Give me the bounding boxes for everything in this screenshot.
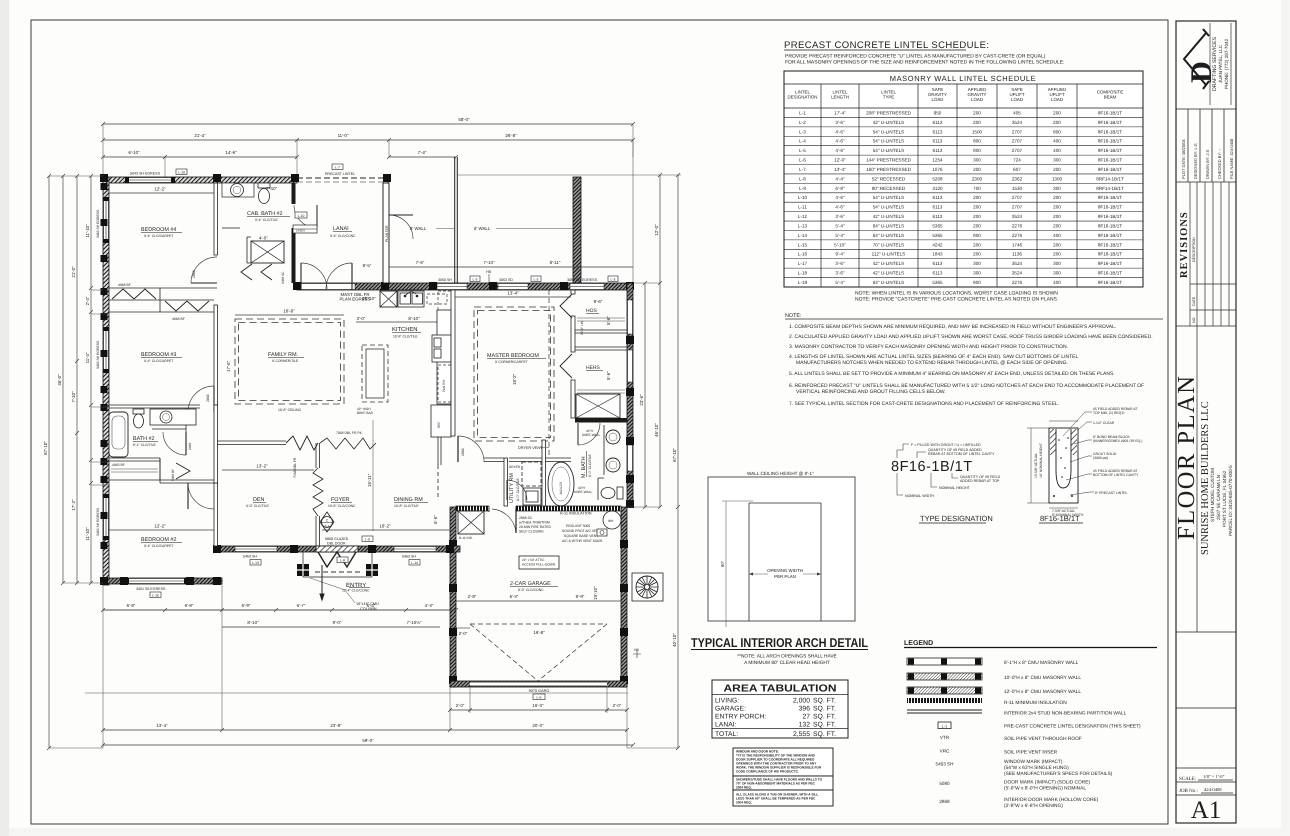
svg-text:L-16: L-16 <box>798 252 808 257</box>
svg-text:3524: 3524 <box>1012 120 1023 125</box>
svg-text:DESIGNED BY: L.G: DESIGNED BY: L.G <box>1193 143 1198 179</box>
svg-text:WALL CEILING HEIGHT @ 8'-1": WALL CEILING HEIGHT @ 8'-1" <box>747 471 814 476</box>
svg-text:13'-2": 13'-2" <box>256 464 268 469</box>
svg-text:DRAWN BY: J.S: DRAWN BY: J.S <box>1205 149 1210 179</box>
svg-text:8F16-1B/1T: 8F16-1B/1T <box>1098 167 1122 172</box>
svg-text:7068 DBL FR PK: 7068 DBL FR PK <box>336 431 363 435</box>
svg-text:PRE-CAST CONCRETE LINTEL DE: PRE-CAST CONCRETE LINTEL DESIGNATION (TH… <box>1004 724 1141 730</box>
svg-text:424-0408: 424-0408 <box>1204 787 1222 792</box>
svg-text:800: 800 <box>1053 129 1061 134</box>
svg-text:L-9: L-9 <box>365 538 370 542</box>
svg-text:9' CORNER/TILE: 9' CORNER/TILE <box>272 359 299 363</box>
svg-text:5365: 5365 <box>932 280 943 285</box>
svg-text:2. CALCULATED APPLIED GRAVITY: 2. CALCULATED APPLIED GRAVITY LOAD AND A… <box>789 334 1153 340</box>
svg-text:9'-4" CLG/TILE: 9'-4" CLG/TILE <box>255 218 279 222</box>
svg-text:S-1: S-1 <box>325 524 330 528</box>
svg-text:1746: 1746 <box>1012 242 1023 247</box>
svg-text:200: 200 <box>1053 110 1061 115</box>
svg-text:59'-0": 59'-0" <box>362 738 374 743</box>
svg-text:16'-8": 16'-8" <box>533 630 545 635</box>
svg-text:17'-6": 17'-6" <box>226 360 231 372</box>
svg-text:8' WALL: 8' WALL <box>474 226 491 231</box>
svg-text:3524: 3524 <box>1012 271 1023 276</box>
svg-text:INTERIOR 2x4 STUD NON-BEARI: INTERIOR 2x4 STUD NON-BEARING PARTITION … <box>1004 711 1127 717</box>
svg-text:300: 300 <box>1053 271 1061 276</box>
svg-text:PLOT DATE: 08/20/04: PLOT DATE: 08/20/04 <box>1181 139 1186 179</box>
svg-text:200: 200 <box>1053 223 1061 228</box>
svg-text:MANUFACTURERS NOTCHES WHEN NEE: MANUFACTURERS NOTCHES WHEN NEEDED TO EXT… <box>796 360 1068 366</box>
svg-text:6113: 6113 <box>933 261 943 266</box>
svg-text:2868: 2868 <box>206 394 210 402</box>
svg-text:L-5: L-5 <box>799 148 806 153</box>
svg-text:8'-5": 8'-5" <box>363 263 372 268</box>
svg-text:2507 SE CARANA LN: 2507 SE CARANA LN <box>1216 475 1221 520</box>
svg-text:5'-6": 5'-6" <box>433 515 438 524</box>
svg-text:KITCHEN: KITCHEN <box>392 326 417 333</box>
svg-text:DATE: DATE <box>1192 296 1196 306</box>
svg-text:2,555: 2,555 <box>793 731 810 738</box>
svg-text:A1: A1 <box>1191 797 1222 824</box>
svg-text:64" U-LINTELS: 64" U-LINTELS <box>873 233 905 238</box>
svg-text:4'-6": 4'-6" <box>835 148 845 153</box>
svg-text:46'-0": 46'-0" <box>57 374 62 386</box>
svg-text:2'-0": 2'-0" <box>613 703 622 708</box>
svg-text:5'-4": 5'-4" <box>835 223 845 228</box>
svg-text:SELF CLOSING: SELF CLOSING <box>519 530 544 534</box>
svg-text:400: 400 <box>1053 139 1061 144</box>
svg-text:10'-8" CLG/CONC: 10'-8" CLG/CONC <box>328 504 356 508</box>
svg-text:40'-10": 40'-10" <box>672 633 677 647</box>
svg-text:5068 SC: 5068 SC <box>281 271 285 284</box>
svg-text:64" U-LINTELS: 64" U-LINTELS <box>873 223 905 228</box>
svg-text:400: 400 <box>1053 148 1061 153</box>
svg-text:KNEE-WALL: KNEE-WALL <box>582 433 601 437</box>
svg-text:6'-8": 6'-8" <box>185 603 194 608</box>
svg-text:8F16-1B/1T: 8F16-1B/1T <box>1098 205 1122 210</box>
svg-text:MASTER BEDROOM: MASTER BEDROOM <box>487 353 539 359</box>
svg-text:8'-0" CLG/TILE: 8'-0" CLG/TILE <box>516 477 520 501</box>
svg-text:3120: 3120 <box>932 186 943 191</box>
svg-text:2276: 2276 <box>1012 233 1023 238</box>
svg-text:R-11 MINIMUM INSULATION: R-11 MINIMUM INSULATION <box>1004 700 1067 706</box>
svg-text:2004 REQ.: 2004 REQ. <box>736 801 752 805</box>
svg-text:CHECKED BY: --: CHECKED BY: -- <box>1217 148 1222 179</box>
svg-text:R-11 INS.: R-11 INS. <box>459 536 473 540</box>
svg-text:11'-10": 11'-10" <box>85 224 90 238</box>
svg-text:8F16-1B/1T: 8F16-1B/1T <box>1098 120 1122 125</box>
svg-text:800: 800 <box>973 139 981 144</box>
svg-text:112" U-LINTELS: 112" U-LINTELS <box>872 252 906 257</box>
svg-text:2276: 2276 <box>1012 223 1023 228</box>
svg-text:OPENING WIDTH: OPENING WIDTH <box>767 568 803 573</box>
svg-text:9'-0" CLG/TILE: 9'-0" CLG/TILE <box>246 504 270 508</box>
svg-text:300: 300 <box>973 261 981 266</box>
svg-text:8'-1" CLG/TILE: 8'-1" CLG/TILE <box>133 443 157 447</box>
svg-text:396: 396 <box>799 706 811 713</box>
svg-text:8F16-1B/1T: 8F16-1B/1T <box>1040 514 1080 523</box>
svg-text:80" RECESSED: 80" RECESSED <box>872 186 906 191</box>
svg-text:5'-4": 5'-4" <box>835 233 845 238</box>
svg-text:L-6: L-6 <box>799 158 806 163</box>
svg-text:5'-10": 5'-10" <box>834 242 846 247</box>
svg-text:DESIGNATION: DESIGNATION <box>788 95 818 100</box>
svg-text:4'-0": 4'-0" <box>259 236 268 241</box>
svg-text:6113: 6113 <box>933 205 943 210</box>
svg-text:5080: 5080 <box>939 781 950 786</box>
svg-text:10'-8" CEILING: 10'-8" CEILING <box>278 408 302 412</box>
svg-text:9'-0" CLG/TILE: 9'-0" CLG/TILE <box>588 453 592 477</box>
svg-text:42" U-LINTELS: 42" U-LINTELS <box>873 120 905 125</box>
svg-text:L-1: L-1 <box>942 724 949 729</box>
svg-text:200: 200 <box>1053 205 1061 210</box>
svg-text:8F16-1B/1T: 8F16-1B/1T <box>1098 280 1122 285</box>
svg-text:16'-10": 16'-10" <box>362 296 376 301</box>
svg-text:1076: 1076 <box>932 167 943 172</box>
svg-text:A/C & WTHR VENT 60105: A/C & WTHR VENT 60105 <box>562 539 602 543</box>
svg-text:ENTRY PORCH:: ENTRY PORCH: <box>715 714 766 721</box>
svg-text:ADDED REBAR AT TOP: ADDED REBAR AT TOP <box>960 479 1000 483</box>
svg-text:C: C <box>326 519 329 523</box>
svg-text:6'-7": 6'-7" <box>297 603 306 608</box>
svg-text:TYPE DESIGNATION: TYPE DESIGNATION <box>920 514 993 523</box>
svg-text:STEPH MODEL CUSTOM: STEPH MODEL CUSTOM <box>1210 468 1215 522</box>
svg-text:1300: 1300 <box>1052 176 1063 181</box>
svg-text:BOTTOM OF LINTEL CAVITY: BOTTOM OF LINTEL CAVITY <box>1093 473 1139 477</box>
svg-text:L-8: L-8 <box>799 176 806 181</box>
svg-text:8" PRECAST LINTEL: 8" PRECAST LINTEL <box>1095 491 1128 495</box>
svg-text:PHONE: (772) 287-7042: PHONE: (772) 287-7042 <box>1224 38 1229 89</box>
svg-text:26'-8": 26'-8" <box>505 133 517 138</box>
svg-text:**NOTE: ALL ARCH OPENINGS SHA: **NOTE: ALL ARCH OPENINGS SHALL HAVE <box>737 654 837 660</box>
svg-text:7'-10": 7'-10" <box>266 186 278 191</box>
svg-text:9070 GARG: 9070 GARG <box>529 689 550 693</box>
svg-text:16'-8": 16'-8" <box>283 309 295 314</box>
svg-text:VTR: VTR <box>940 735 950 740</box>
svg-text:9' CORNER/CARPET: 9' CORNER/CARPET <box>495 360 528 364</box>
svg-text:2868 SC: 2868 SC <box>519 516 533 520</box>
svg-text:300: 300 <box>973 271 981 276</box>
svg-text:BEAM: BEAM <box>1104 95 1117 100</box>
svg-text:2468: 2468 <box>188 443 192 450</box>
svg-text:12'-0"H x 8" CMU MASONRY: 12'-0"H x 8" CMU MASONRY WALL <box>1004 689 1081 695</box>
svg-text:LIVING:: LIVING: <box>715 698 739 705</box>
svg-text:GARAGE:: GARAGE: <box>715 706 746 713</box>
svg-text:4068 BF: 4068 BF <box>172 317 185 321</box>
svg-text:HOS: HOS <box>586 308 598 314</box>
svg-text:FOR ALL MASONRY OPENINGS OF TH: FOR ALL MASONRY OPENINGS OF THE SIZE AND… <box>785 60 1065 66</box>
svg-text:L-10: L-10 <box>178 171 185 175</box>
svg-text:6113: 6113 <box>933 148 943 153</box>
svg-text:23'-8": 23'-8" <box>330 723 342 728</box>
svg-text:9'-4" CLG/CARPET: 9'-4" CLG/CARPET <box>144 359 173 363</box>
svg-text:L-10: L-10 <box>798 195 808 200</box>
svg-text:BRKF BAR: BRKF BAR <box>357 411 374 415</box>
svg-text:87'-10": 87'-10" <box>43 441 48 455</box>
svg-text:200: 200 <box>973 252 981 257</box>
svg-text:3524: 3524 <box>1012 261 1023 266</box>
svg-text:WINDOW MARK (IMPACT): WINDOW MARK (IMPACT) <box>1004 759 1063 765</box>
svg-text:NOTE: PROVIDE "CASTCRETE" PRE: NOTE: PROVIDE "CASTCRETE" PRE-CAST CONCR… <box>855 297 1058 303</box>
svg-text:LINEN: LINEN <box>296 229 305 233</box>
svg-text:HB: HB <box>486 270 492 274</box>
svg-text:L-15: L-15 <box>798 242 808 247</box>
svg-text:200: 200 <box>973 214 981 219</box>
svg-text:2707: 2707 <box>1012 148 1023 153</box>
svg-text:LOAD: LOAD <box>1011 97 1023 102</box>
svg-text:4'-4": 4'-4" <box>835 176 845 181</box>
svg-text:8F16-1B/1T: 8F16-1B/1T <box>1098 242 1122 247</box>
svg-text:PARCEL ID: 3420-605-0770-000-5: PARCEL ID: 3420-605-0770-000-5 <box>1228 465 1233 536</box>
svg-text:2276: 2276 <box>1012 280 1023 285</box>
svg-text:L-1: L-1 <box>799 110 806 115</box>
svg-text:4'-6": 4'-6" <box>835 205 845 210</box>
svg-text:3463 SH EGRESS: 3463 SH EGRESS <box>96 340 100 369</box>
svg-text:10'-8" CLG/TILE: 10'-8" CLG/TILE <box>393 335 418 339</box>
svg-text:3401 S6 EGRESS: 3401 S6 EGRESS <box>136 587 166 591</box>
svg-text:CODE COMPLIANCE OF HIS PRODUCT: CODE COMPLIANCE OF HIS PRODUCTS. <box>736 770 799 774</box>
svg-text:5208: 5208 <box>932 176 943 181</box>
svg-text:L-3: L-3 <box>611 278 616 282</box>
svg-text:DEN: DEN <box>253 497 264 503</box>
svg-text:VERTICAL REINFORCING AND GROUT: VERTICAL REINFORCING AND GROUT FILLING C… <box>796 389 946 395</box>
svg-text:8F16-1B/1T: 8F16-1B/1T <box>1098 158 1122 163</box>
svg-text:4'-6": 4'-6" <box>835 195 845 200</box>
svg-text:800: 800 <box>973 148 981 153</box>
svg-text:PRECAST LINTEL: PRECAST LINTEL <box>325 172 355 176</box>
svg-text:5'-6": 5'-6" <box>606 316 611 325</box>
svg-text:LOAD: LOAD <box>1051 97 1063 102</box>
svg-text:8F16-1B/1T: 8F16-1B/1T <box>1098 139 1122 144</box>
svg-text:12'-0": 12'-0" <box>834 158 846 163</box>
svg-text:6113: 6113 <box>933 139 943 144</box>
svg-text:REVISIONS: REVISIONS <box>1179 211 1190 278</box>
svg-text:5463 SH: 5463 SH <box>243 555 257 559</box>
svg-text:DRYER VENT: DRYER VENT <box>518 446 543 450</box>
svg-text:54" U-LINTELS: 54" U-LINTELS <box>873 129 905 134</box>
svg-text:KNEE-WALL: KNEE-WALL <box>574 490 593 494</box>
svg-text:1254: 1254 <box>932 158 943 163</box>
svg-text:LENGTH: LENGTH <box>831 95 849 100</box>
svg-text:SOIL PIPE VENT THROUGH ROO: SOIL PIPE VENT THROUGH ROOF <box>1004 736 1082 742</box>
svg-text:11'-0": 11'-0" <box>338 133 349 138</box>
svg-text:13'-4": 13'-4" <box>156 723 168 728</box>
svg-text:NOTE:: NOTE: <box>785 313 801 319</box>
svg-text:8F16-1B/1T: 8F16-1B/1T <box>1098 223 1122 228</box>
svg-text:L-9: L-9 <box>799 186 806 191</box>
svg-text:BEDROOM #2: BEDROOM #2 <box>141 537 176 543</box>
svg-text:NOMINAL WIDTH: NOMINAL WIDTH <box>905 494 934 498</box>
svg-text:3'-6": 3'-6" <box>835 271 845 276</box>
svg-text:3463 SH EGRESS: 3463 SH EGRESS <box>96 209 100 238</box>
svg-text:200: 200 <box>1053 242 1061 247</box>
svg-text:L-7: L-7 <box>799 167 806 172</box>
svg-text:6'-10": 6'-10" <box>128 150 140 155</box>
svg-text:LANAI: LANAI <box>333 226 349 232</box>
svg-text:L-13: L-13 <box>252 561 259 565</box>
svg-text:54" U-LINTELS: 54" U-LINTELS <box>873 205 905 210</box>
svg-text:L-18: L-18 <box>798 271 808 276</box>
svg-text:8F16-1B/1T: 8F16-1B/1T <box>1098 110 1122 115</box>
svg-text:607: 607 <box>1013 167 1021 172</box>
svg-text:1-1/2" CLEAR: 1-1/2" CLEAR <box>1093 421 1115 425</box>
svg-text:SCALE:: SCALE: <box>1179 776 1196 782</box>
svg-text:FAMILY RM.: FAMILY RM. <box>268 352 298 358</box>
svg-text:3050 SH: 3050 SH <box>438 278 452 282</box>
svg-text:2707: 2707 <box>1012 129 1023 134</box>
svg-text:8RF14-1B/1T: 8RF14-1B/1T <box>1096 186 1124 191</box>
svg-text:4'-6": 4'-6" <box>835 129 845 134</box>
svg-text:200: 200 <box>1053 214 1061 219</box>
svg-text:SQUARE BASE VENT: SQUARE BASE VENT <box>564 534 598 538</box>
svg-text:8F16-1B/1T: 8F16-1B/1T <box>891 459 973 475</box>
svg-text:200: 200 <box>1053 167 1061 172</box>
svg-text:300: 300 <box>1053 186 1061 191</box>
svg-text:8'-1"H x 8" CMU MASONRY W: 8'-1"H x 8" CMU MASONRY WALL <box>1004 660 1079 666</box>
svg-text:LEGEND: LEGEND <box>904 640 933 647</box>
svg-text:200: 200 <box>973 242 981 247</box>
svg-text:(5'-0"W x 8'-0"H OPENING): (5'-0"W x 8'-0"H OPENING) NOMINAL <box>1004 786 1086 792</box>
svg-text:1530: 1530 <box>1012 186 1023 191</box>
svg-text:400: 400 <box>1053 280 1061 285</box>
svg-text:200: 200 <box>1053 120 1061 125</box>
svg-text:L-4: L-4 <box>799 139 806 144</box>
svg-text:14'-6": 14'-6" <box>225 150 237 155</box>
svg-text:10'-0"H x 8" CMU MASONRY: 10'-0"H x 8" CMU MASONRY WALL <box>1004 675 1081 681</box>
svg-text:5463 SH: 5463 SH <box>936 762 954 767</box>
svg-text:5'-4": 5'-4" <box>835 280 845 285</box>
svg-text:3'-6": 3'-6" <box>835 120 845 125</box>
svg-text:(KINNER/CEMEX #901 OR EQ.): (KINNER/CEMEX #901 OR EQ.) <box>1093 439 1142 443</box>
svg-text:6113: 6113 <box>933 195 943 200</box>
svg-text:4068 BF: 4068 BF <box>118 283 131 287</box>
svg-text:2868: 2868 <box>192 270 196 278</box>
svg-text:1. COMPOSITE BEAM DEPTHS SHOW: 1. COMPOSITE BEAM DEPTHS SHOWN ARE MINIM… <box>789 324 1116 330</box>
svg-text:2,000: 2,000 <box>793 698 810 705</box>
svg-text:L-8: L-8 <box>340 559 345 563</box>
svg-text:L-12: L-12 <box>798 214 808 219</box>
svg-text:7'-10": 7'-10" <box>71 391 76 403</box>
svg-text:F = FILLED WITH GROUT / U = UN: F = FILLED WITH GROUT / U = UNFILLED <box>911 443 981 447</box>
svg-text:LANAI:: LANAI: <box>715 722 737 729</box>
svg-text:42" U-LINTELS: 42" U-LINTELS <box>873 261 905 266</box>
svg-text:SQ. FT.: SQ. FT. <box>813 698 836 705</box>
svg-text:DESCRIPTION: DESCRIPTION <box>1192 237 1196 262</box>
svg-text:L-13: L-13 <box>798 223 808 228</box>
svg-text:SQ. FT.: SQ. FT. <box>813 706 836 713</box>
svg-text:DINING RM: DINING RM <box>394 497 423 503</box>
svg-text:2707: 2707 <box>1012 195 1023 200</box>
svg-text:8RF14-1B/1T: 8RF14-1B/1T <box>1096 176 1124 181</box>
svg-text:8' WALL: 8' WALL <box>410 226 427 231</box>
svg-text:DOOR MARK (IMPACT) (SOLID: DOOR MARK (IMPACT) (SOLID CORE) <box>1004 780 1090 786</box>
svg-text:6113: 6113 <box>933 271 943 276</box>
svg-text:200: 200 <box>973 205 981 210</box>
svg-text:L-10: L-10 <box>298 214 305 218</box>
svg-text:3'-0": 3'-0" <box>357 316 366 321</box>
svg-text:3'-6": 3'-6" <box>835 261 845 266</box>
svg-text:5068 BF: 5068 BF <box>171 469 175 481</box>
svg-text:PORT ST LUCIE, FL 34952: PORT ST LUCIE, FL 34952 <box>1222 470 1227 527</box>
svg-text:20'-0": 20'-0" <box>532 723 544 728</box>
svg-text:23'-6": 23'-6" <box>639 394 644 406</box>
svg-text:7068 DBL FR: 7068 DBL FR <box>293 457 297 478</box>
svg-text:7'-6": 7'-6" <box>416 260 425 265</box>
svg-text:8F16-1B/1T: 8F16-1B/1T <box>1098 233 1122 238</box>
svg-text:9'-4": 9'-4" <box>835 252 845 257</box>
svg-text:27: 27 <box>802 714 810 721</box>
svg-text:L-16: L-16 <box>152 594 159 598</box>
svg-text:4242: 4242 <box>932 242 943 247</box>
svg-text:16'-11": 16'-11" <box>367 473 372 487</box>
svg-text:(3000 psi): (3000 psi) <box>1093 456 1108 460</box>
svg-text:BATH #2: BATH #2 <box>133 436 154 442</box>
svg-text:JACUZZI: JACUZZI <box>559 482 563 495</box>
svg-text:DBL DOOR: DBL DOOR <box>327 542 346 546</box>
svg-text:(SEE MANUFACTURER'S SPECS F: (SEE MANUFACTURER'S SPECS FOR DETAILS) <box>1004 771 1113 777</box>
svg-text:52" RECESSED: 52" RECESSED <box>872 176 906 181</box>
svg-text:7. SEE TYPICAL LINTEL SECTION: 7. SEE TYPICAL LINTEL SECTION FOR CAST-C… <box>789 401 1059 407</box>
svg-text:12'-2": 12'-2" <box>154 187 166 192</box>
svg-text:REF: REF <box>437 422 441 428</box>
svg-text:16'-0": 16'-0" <box>532 703 544 708</box>
svg-text:8'-10": 8'-10" <box>247 620 259 625</box>
svg-text:2004 REQ.: 2004 REQ. <box>736 786 752 790</box>
svg-text:2'-8": 2'-8" <box>468 594 477 599</box>
svg-text:CAB. BATH #2: CAB. BATH #2 <box>247 211 283 217</box>
svg-text:SQ. FT.: SQ. FT. <box>813 722 836 729</box>
svg-text:5365: 5365 <box>932 223 943 228</box>
svg-text:L-3: L-3 <box>534 278 539 282</box>
svg-text:HERS: HERS <box>586 365 601 371</box>
svg-text:54" U-LINTELS: 54" U-LINTELS <box>873 195 905 200</box>
svg-text:(2'-8"W x 6'-8"H OPENING): (2'-8"W x 6'-8"H OPENING) <box>1004 803 1063 809</box>
svg-text:5. ALL LINTELS SHALL BE SET T: 5. ALL LINTELS SHALL BE SET TO PROVIDE A… <box>789 371 1115 377</box>
svg-text:2'-4": 2'-4" <box>85 296 90 305</box>
svg-text:132: 132 <box>799 722 811 729</box>
svg-text:FOYER: FOYER <box>331 497 350 503</box>
svg-text:64" U-LINTELS: 64" U-LINTELS <box>873 280 905 285</box>
svg-text:8'-0" CLG/CONC: 8'-0" CLG/CONC <box>518 588 544 592</box>
svg-text:REBAR AT BOTTOM OF LINTEL CAVI: REBAR AT BOTTOM OF LINTEL CAVITY <box>928 452 995 456</box>
svg-text:18'-2": 18'-2" <box>512 373 517 385</box>
svg-text:160" PRESTRESSED: 160" PRESTRESSED <box>866 167 911 172</box>
svg-text:2300: 2300 <box>972 176 983 181</box>
svg-text:BEDROOM #4: BEDROOM #4 <box>141 227 176 233</box>
svg-text:2'-0": 2'-0" <box>456 703 465 708</box>
svg-text:6'-3": 6'-3" <box>510 594 519 599</box>
svg-text:w/THEA TRIM/TRIM: w/THEA TRIM/TRIM <box>519 521 550 525</box>
svg-text:L-17: L-17 <box>798 261 808 266</box>
svg-text:8'-11": 8'-11" <box>550 260 561 265</box>
svg-text:BEDROOM #3: BEDROOM #3 <box>141 352 176 358</box>
svg-text:5365: 5365 <box>932 233 943 238</box>
svg-text:800: 800 <box>973 280 981 285</box>
svg-text:54" U-LINTELS: 54" U-LINTELS <box>873 139 905 144</box>
svg-text:1500: 1500 <box>972 129 983 134</box>
svg-text:17'-2": 17'-2" <box>71 499 76 511</box>
svg-text:UTILITY RM: UTILITY RM <box>509 473 515 503</box>
svg-text:FLOOR PLAN: FLOOR PLAN <box>1173 375 1200 540</box>
svg-text:L-3: L-3 <box>473 278 478 282</box>
svg-text:A MINIMUM 80" CLEAR HEAD HEIGH: A MINIMUM 80" CLEAR HEAD HEIGHT <box>744 660 830 666</box>
svg-text:15-5/8" ACTUAL: 15-5/8" ACTUAL <box>1034 453 1038 478</box>
svg-text:3053 SH EGRESS: 3053 SH EGRESS <box>567 278 598 282</box>
svg-text:13'-4": 13'-4" <box>834 167 846 172</box>
svg-text:1136: 1136 <box>1012 252 1022 257</box>
svg-text:7'-10½": 7'-10½" <box>407 620 422 625</box>
svg-text:2'-0": 2'-0" <box>459 631 468 636</box>
svg-text:300: 300 <box>973 158 981 163</box>
